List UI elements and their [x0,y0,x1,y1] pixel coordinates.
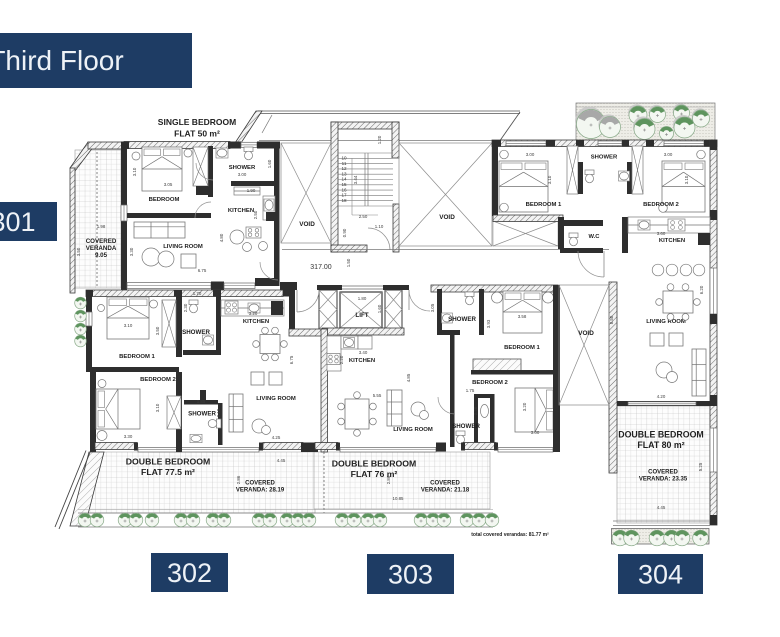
svg-text:3.10: 3.10 [155,403,160,412]
svg-text:Third Floor: Third Floor [0,45,124,76]
svg-text:BEDROOM 2: BEDROOM 2 [643,202,679,208]
svg-text:3.50: 3.50 [155,326,160,335]
svg-text:SHOWER: SHOWER [229,165,256,171]
svg-text:W.C: W.C [589,234,601,240]
svg-text:3.10: 3.10 [684,175,689,184]
svg-text:1.80: 1.80 [358,296,367,301]
svg-text:3.00: 3.00 [238,172,247,177]
svg-text:BEDROOM 1: BEDROOM 1 [119,354,155,360]
svg-text:FLAT 80 m²: FLAT 80 m² [637,440,684,450]
svg-text:VERANDA: 21.18: VERANDA: 21.18 [421,488,470,494]
svg-text:KITCHEN: KITCHEN [349,358,375,364]
svg-text:COVERED: COVERED [430,481,460,487]
svg-text:VOID: VOID [299,221,315,228]
svg-text:1.10: 1.10 [375,224,384,229]
svg-text:BEDROOM 1: BEDROOM 1 [504,345,540,351]
svg-text:3.60: 3.60 [657,231,666,236]
svg-text:3.05: 3.05 [430,303,435,312]
svg-text:304: 304 [638,560,683,590]
svg-text:BEDROOM 2: BEDROOM 2 [140,377,176,383]
svg-text:3.44: 3.44 [353,175,358,184]
svg-text:12: 12 [341,166,347,171]
svg-text:2.20: 2.20 [473,406,478,415]
svg-text:6.75: 6.75 [198,268,207,273]
svg-text:5.55: 5.55 [373,393,382,398]
svg-text:18: 18 [341,198,347,203]
svg-text:COVERED: COVERED [86,238,117,245]
svg-text:303: 303 [388,560,433,590]
svg-text:VOID: VOID [578,330,594,337]
svg-text:DOUBLE BEDROOM: DOUBLE BEDROOM [126,457,210,467]
svg-text:3.40: 3.40 [359,350,368,355]
svg-text:LIVING ROOM: LIVING ROOM [163,244,203,250]
svg-text:1.90: 1.90 [247,188,256,193]
svg-text:SHOWER: SHOWER [188,411,216,418]
svg-text:total covered verandas: 81.77: total covered verandas: 81.77 m² [471,532,549,538]
svg-text:SHOWER: SHOWER [448,316,476,323]
svg-text:2.50: 2.50 [253,210,258,219]
svg-text:LIVING ROOM: LIVING ROOM [393,427,433,433]
svg-text:4.45: 4.45 [277,458,286,463]
svg-text:10: 10 [341,156,347,161]
svg-text:BEDROOM: BEDROOM [149,197,180,203]
svg-text:3.05: 3.05 [164,182,173,187]
svg-text:3.10: 3.10 [547,175,552,184]
svg-text:4.20: 4.20 [657,394,666,399]
svg-text:3.00: 3.00 [664,152,673,157]
svg-text:3.58: 3.58 [518,314,527,319]
svg-text:3.30: 3.30 [124,434,133,439]
svg-text:DOUBLE BEDROOM: DOUBLE BEDROOM [618,430,704,440]
svg-text:VERANDA: 28.19: VERANDA: 28.19 [236,488,285,494]
svg-text:LIFT: LIFT [355,312,368,319]
svg-text:KITCHEN: KITCHEN [228,208,254,214]
svg-text:KITCHEN: KITCHEN [659,238,685,244]
svg-text:302: 302 [167,558,212,588]
svg-text:2.86: 2.86 [236,475,241,484]
svg-text:KITCHEN: KITCHEN [243,319,269,325]
svg-text:VOID: VOID [439,214,455,221]
svg-text:2.50: 2.50 [359,214,368,219]
svg-text:10.85: 10.85 [393,496,405,501]
svg-text:6.20: 6.20 [699,285,704,294]
svg-text:3.93: 3.93 [486,319,491,328]
svg-text:3.20: 3.20 [249,311,258,316]
svg-text:317.00: 317.00 [310,264,332,271]
svg-text:4.80: 4.80 [219,233,224,242]
svg-text:3.50: 3.50 [76,247,81,256]
svg-text:6.75: 6.75 [289,355,294,364]
svg-text:1.75: 1.75 [466,388,475,393]
svg-text:DOUBLE BEDROOM: DOUBLE BEDROOM [332,459,416,469]
svg-text:SHOWER: SHOWER [182,329,210,336]
svg-text:1.60: 1.60 [377,304,382,313]
svg-text:17: 17 [341,193,347,198]
svg-text:FLAT 50 m²: FLAT 50 m² [174,129,220,139]
svg-text:4.25: 4.25 [272,435,281,440]
svg-text:3.10: 3.10 [124,323,133,328]
svg-text:16: 16 [341,187,347,192]
svg-text:4.45: 4.45 [657,505,666,510]
svg-text:SHOWER: SHOWER [452,423,480,430]
svg-text:COVERED: COVERED [245,481,275,487]
svg-text:LIVING ROOM: LIVING ROOM [646,319,686,325]
svg-text:3.10: 3.10 [132,167,137,176]
svg-text:3.00: 3.00 [531,430,540,435]
svg-text:2.30: 2.30 [183,303,188,312]
svg-text:301: 301 [0,207,36,237]
svg-text:5.25: 5.25 [698,462,703,471]
svg-text:FLAT 77.5 m²: FLAT 77.5 m² [141,467,195,477]
svg-text:2.20: 2.20 [339,355,344,364]
svg-text:1.98: 1.98 [97,224,106,229]
svg-text:9.05: 9.05 [95,252,108,259]
svg-text:2.10: 2.10 [216,408,221,417]
svg-text:15: 15 [341,182,347,187]
svg-text:BEDROOM 1: BEDROOM 1 [526,202,562,208]
svg-text:1.50: 1.50 [346,258,351,267]
svg-text:3.00: 3.00 [526,152,535,157]
svg-text:14: 14 [341,177,347,182]
svg-text:3.20: 3.20 [522,402,527,411]
svg-text:SINGLE BEDROOM: SINGLE BEDROOM [158,117,236,127]
svg-text:VERANDA: VERANDA [86,245,117,252]
svg-text:1.85: 1.85 [197,399,206,404]
svg-text:0.90: 0.90 [342,228,347,237]
svg-text:1.60: 1.60 [267,159,272,168]
svg-text:3.30: 3.30 [129,247,134,256]
svg-text:LIVING ROOM: LIVING ROOM [256,396,296,402]
svg-text:13: 13 [341,171,347,176]
svg-text:SHOWER: SHOWER [591,155,618,161]
svg-text:4.85: 4.85 [406,373,411,382]
svg-text:VERANDA: 23.35: VERANDA: 23.35 [639,477,688,483]
svg-text:11: 11 [342,161,347,166]
svg-text:8.50: 8.50 [609,315,614,324]
svg-text:COVERED: COVERED [648,470,678,476]
svg-text:2.86: 2.86 [386,475,391,484]
svg-text:1.70: 1.70 [193,291,202,296]
svg-text:1.20: 1.20 [377,135,382,144]
svg-text:BEDROOM 2: BEDROOM 2 [472,380,508,386]
